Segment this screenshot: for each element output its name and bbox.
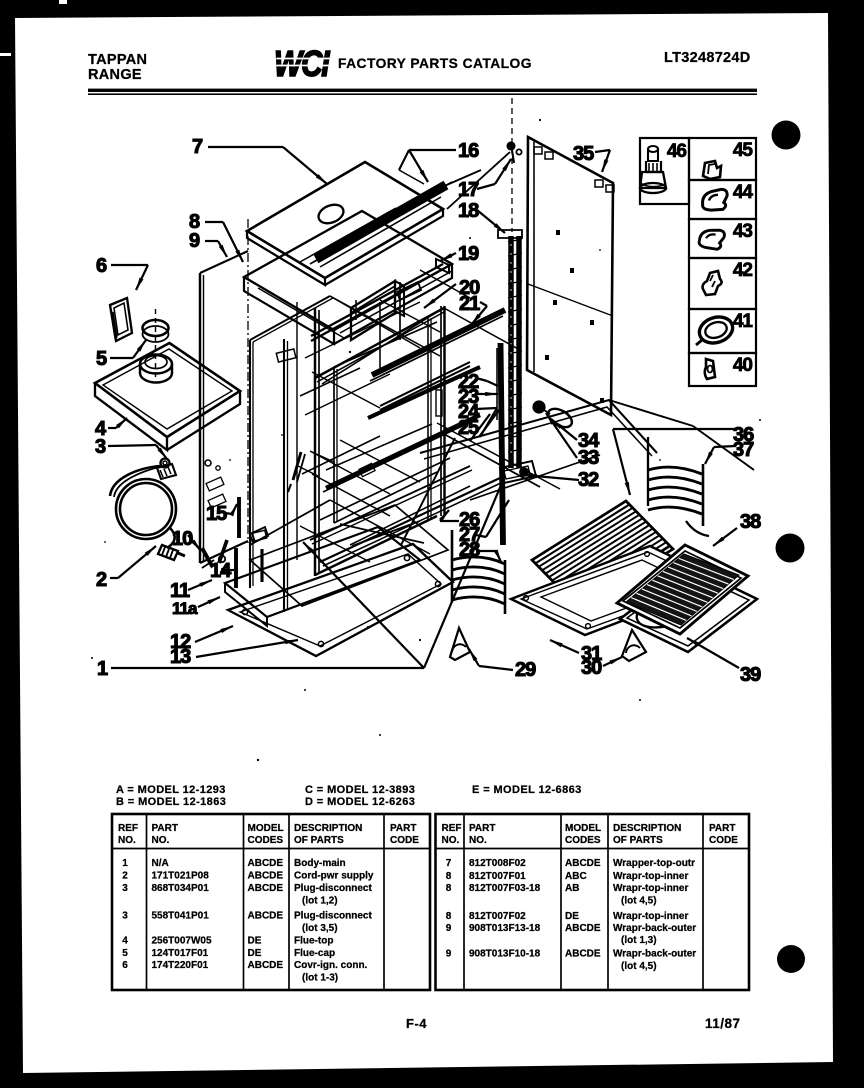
svg-text:DESCRIPTION: DESCRIPTION <box>613 823 681 834</box>
svg-text:NO.: NO. <box>442 835 460 846</box>
svg-text:(lot 3,5): (lot 3,5) <box>302 923 338 934</box>
svg-text:Plug-disconnect: Plug-disconnect <box>294 911 372 922</box>
svg-text:3: 3 <box>122 883 128 894</box>
svg-text:171T021P08: 171T021P08 <box>152 871 210 882</box>
svg-text:5: 5 <box>122 948 128 959</box>
svg-text:REF: REF <box>118 823 138 834</box>
svg-text:Cord-pwr supply: Cord-pwr supply <box>294 871 374 882</box>
svg-text:ABCDE: ABCDE <box>248 871 284 882</box>
svg-text:OF PARTS: OF PARTS <box>294 835 344 846</box>
svg-text:ABCDE: ABCDE <box>565 923 601 934</box>
svg-text:908T013F13-18: 908T013F13-18 <box>469 923 541 934</box>
svg-text:PART: PART <box>390 823 416 834</box>
svg-text:812T007F03-18: 812T007F03-18 <box>469 883 541 894</box>
svg-text:NO.: NO. <box>152 835 170 846</box>
svg-text:19: 19 <box>458 243 479 265</box>
svg-text:DE: DE <box>248 948 262 959</box>
svg-text:37: 37 <box>733 439 754 461</box>
svg-text:18: 18 <box>458 200 479 222</box>
svg-text:TAPPAN: TAPPAN <box>88 52 147 68</box>
svg-text:9: 9 <box>446 923 452 934</box>
svg-text:MODEL: MODEL <box>248 823 284 834</box>
svg-text:21: 21 <box>459 293 480 315</box>
svg-text:7: 7 <box>446 858 452 869</box>
svg-text:Plug-disconnect: Plug-disconnect <box>294 883 372 894</box>
svg-text:40: 40 <box>733 355 753 376</box>
svg-text:11a: 11a <box>172 599 198 618</box>
svg-text:9: 9 <box>189 230 200 252</box>
svg-text:NO.: NO. <box>469 835 487 846</box>
svg-text:124T017F01: 124T017F01 <box>152 948 209 959</box>
svg-text:908T013F10-18: 908T013F10-18 <box>469 949 541 960</box>
svg-text:39: 39 <box>740 664 761 686</box>
svg-text:RANGE: RANGE <box>88 67 142 83</box>
svg-text:44: 44 <box>733 182 754 203</box>
svg-text:(lot 1,2): (lot 1,2) <box>302 896 338 907</box>
svg-text:812T007F01: 812T007F01 <box>469 871 526 882</box>
svg-text:ABCDE: ABCDE <box>565 949 601 960</box>
svg-text:DESCRIPTION: DESCRIPTION <box>294 823 362 834</box>
svg-text:(lot 1,3): (lot 1,3) <box>621 935 657 946</box>
svg-text:45: 45 <box>733 140 754 161</box>
svg-text:Wrapr-top-inner: Wrapr-top-inner <box>613 871 688 882</box>
svg-text:33: 33 <box>578 447 599 469</box>
svg-text:B = MODEL 12-1863: B = MODEL 12-1863 <box>116 796 226 808</box>
svg-text:C = MODEL 12-3893: C = MODEL 12-3893 <box>305 784 415 796</box>
svg-text:CODE: CODE <box>709 835 738 846</box>
svg-text:FACTORY PARTS CATALOG: FACTORY PARTS CATALOG <box>338 56 532 71</box>
svg-text:ABCDE: ABCDE <box>248 960 284 971</box>
svg-text:ABCDE: ABCDE <box>248 883 284 894</box>
svg-text:Flue-cap: Flue-cap <box>294 948 335 959</box>
svg-text:32: 32 <box>578 469 599 491</box>
svg-text:PART: PART <box>709 823 735 834</box>
svg-text:Wrapr-top-inner: Wrapr-top-inner <box>613 911 688 922</box>
svg-text:NO.: NO. <box>118 835 136 846</box>
svg-text:35: 35 <box>573 143 594 165</box>
svg-text:46: 46 <box>667 141 687 162</box>
svg-text:LT3248724D: LT3248724D <box>664 50 751 66</box>
svg-text:Body-main: Body-main <box>294 858 346 869</box>
svg-text:DE: DE <box>565 911 579 922</box>
svg-text:11/87: 11/87 <box>705 1016 741 1031</box>
svg-text:Wrapr-back-outer: Wrapr-back-outer <box>613 949 696 960</box>
svg-text:(lot 4,5): (lot 4,5) <box>621 961 657 972</box>
svg-text:6: 6 <box>96 255 107 277</box>
svg-text:6: 6 <box>122 960 128 971</box>
svg-text:29: 29 <box>515 659 536 681</box>
svg-text:D = MODEL 12-6263: D = MODEL 12-6263 <box>305 796 415 808</box>
svg-text:812T008F02: 812T008F02 <box>469 858 526 869</box>
svg-text:Wrapr-back-outer: Wrapr-back-outer <box>613 923 696 934</box>
svg-text:ABCDE: ABCDE <box>248 858 284 869</box>
svg-text:2: 2 <box>96 569 107 591</box>
svg-text:CODES: CODES <box>565 835 601 846</box>
svg-text:OF PARTS: OF PARTS <box>613 835 663 846</box>
svg-text:ABC: ABC <box>565 871 587 882</box>
svg-text:3: 3 <box>95 436 106 458</box>
svg-text:ABCDE: ABCDE <box>565 858 601 869</box>
svg-text:E = MODEL 12-6863: E = MODEL 12-6863 <box>472 784 582 796</box>
svg-text:DE: DE <box>248 936 262 947</box>
svg-text:8: 8 <box>446 871 452 882</box>
svg-text:812T007F02: 812T007F02 <box>469 911 526 922</box>
svg-text:30: 30 <box>581 657 602 679</box>
svg-text:42: 42 <box>733 260 753 281</box>
svg-text:43: 43 <box>733 221 753 242</box>
svg-text:(lot 1-3): (lot 1-3) <box>302 973 338 984</box>
svg-text:REF: REF <box>442 823 462 834</box>
svg-text:WCI: WCI <box>274 44 330 84</box>
svg-text:3: 3 <box>122 911 128 922</box>
svg-text:PART: PART <box>469 823 495 834</box>
svg-text:8: 8 <box>446 911 452 922</box>
svg-text:4: 4 <box>122 936 128 947</box>
svg-text:1: 1 <box>122 858 128 869</box>
svg-text:25: 25 <box>458 417 479 439</box>
svg-text:1: 1 <box>97 658 108 680</box>
svg-text:MODEL: MODEL <box>565 823 601 834</box>
svg-text:868T034P01: 868T034P01 <box>152 883 210 894</box>
svg-text:AB: AB <box>565 883 579 894</box>
svg-text:17: 17 <box>458 179 479 201</box>
svg-text:38: 38 <box>740 511 761 533</box>
svg-text:13: 13 <box>170 646 191 668</box>
svg-text:CODES: CODES <box>248 835 284 846</box>
svg-text:N/A: N/A <box>152 858 169 869</box>
svg-text:9: 9 <box>446 949 452 960</box>
svg-text:256T007W05: 256T007W05 <box>152 936 212 947</box>
svg-text:F-4: F-4 <box>406 1016 427 1031</box>
svg-text:Flue-top: Flue-top <box>294 936 333 947</box>
svg-text:16: 16 <box>458 140 479 162</box>
svg-text:Covr-ign. conn.: Covr-ign. conn. <box>294 960 368 971</box>
svg-text:15: 15 <box>206 503 227 525</box>
svg-text:A = MODEL 12-1293: A = MODEL 12-1293 <box>116 784 226 796</box>
svg-text:174T220F01: 174T220F01 <box>152 960 209 971</box>
svg-text:PART: PART <box>152 823 178 834</box>
svg-text:41: 41 <box>733 311 754 332</box>
svg-text:CODE: CODE <box>390 835 419 846</box>
svg-text:7: 7 <box>192 136 203 158</box>
svg-text:Wrapper-top-outr: Wrapper-top-outr <box>613 858 695 869</box>
svg-text:2: 2 <box>122 871 128 882</box>
svg-text:Wrapr-top-inner: Wrapr-top-inner <box>613 883 688 894</box>
svg-text:558T041P01: 558T041P01 <box>152 911 210 922</box>
svg-text:ABCDE: ABCDE <box>248 911 284 922</box>
svg-text:8: 8 <box>446 883 452 894</box>
svg-text:(lot 4,5): (lot 4,5) <box>621 896 657 907</box>
svg-text:5: 5 <box>96 348 107 370</box>
